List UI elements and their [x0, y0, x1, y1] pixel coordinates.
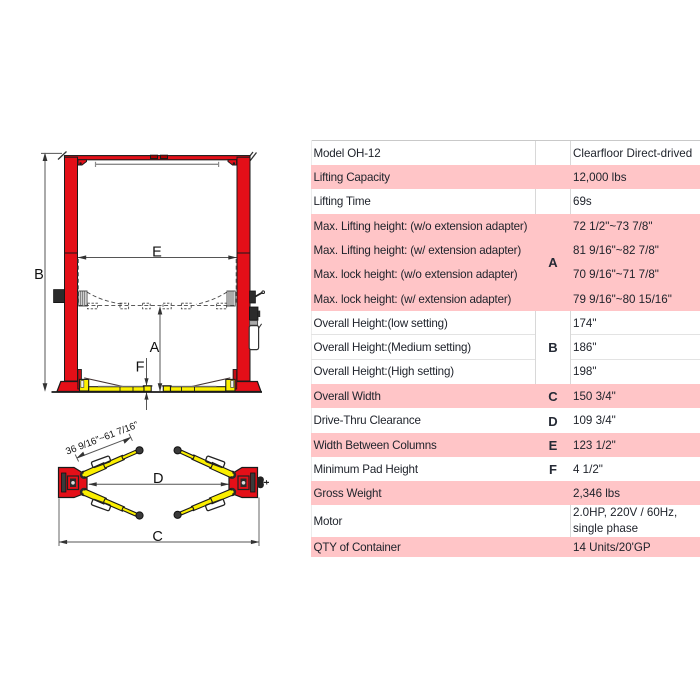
svg-text:E: E	[152, 245, 162, 261]
svg-text:D: D	[153, 471, 163, 487]
svg-text:B: B	[34, 267, 44, 283]
svg-text:F: F	[136, 360, 145, 376]
svg-text:A: A	[150, 340, 160, 356]
svg-text:C: C	[152, 529, 162, 545]
